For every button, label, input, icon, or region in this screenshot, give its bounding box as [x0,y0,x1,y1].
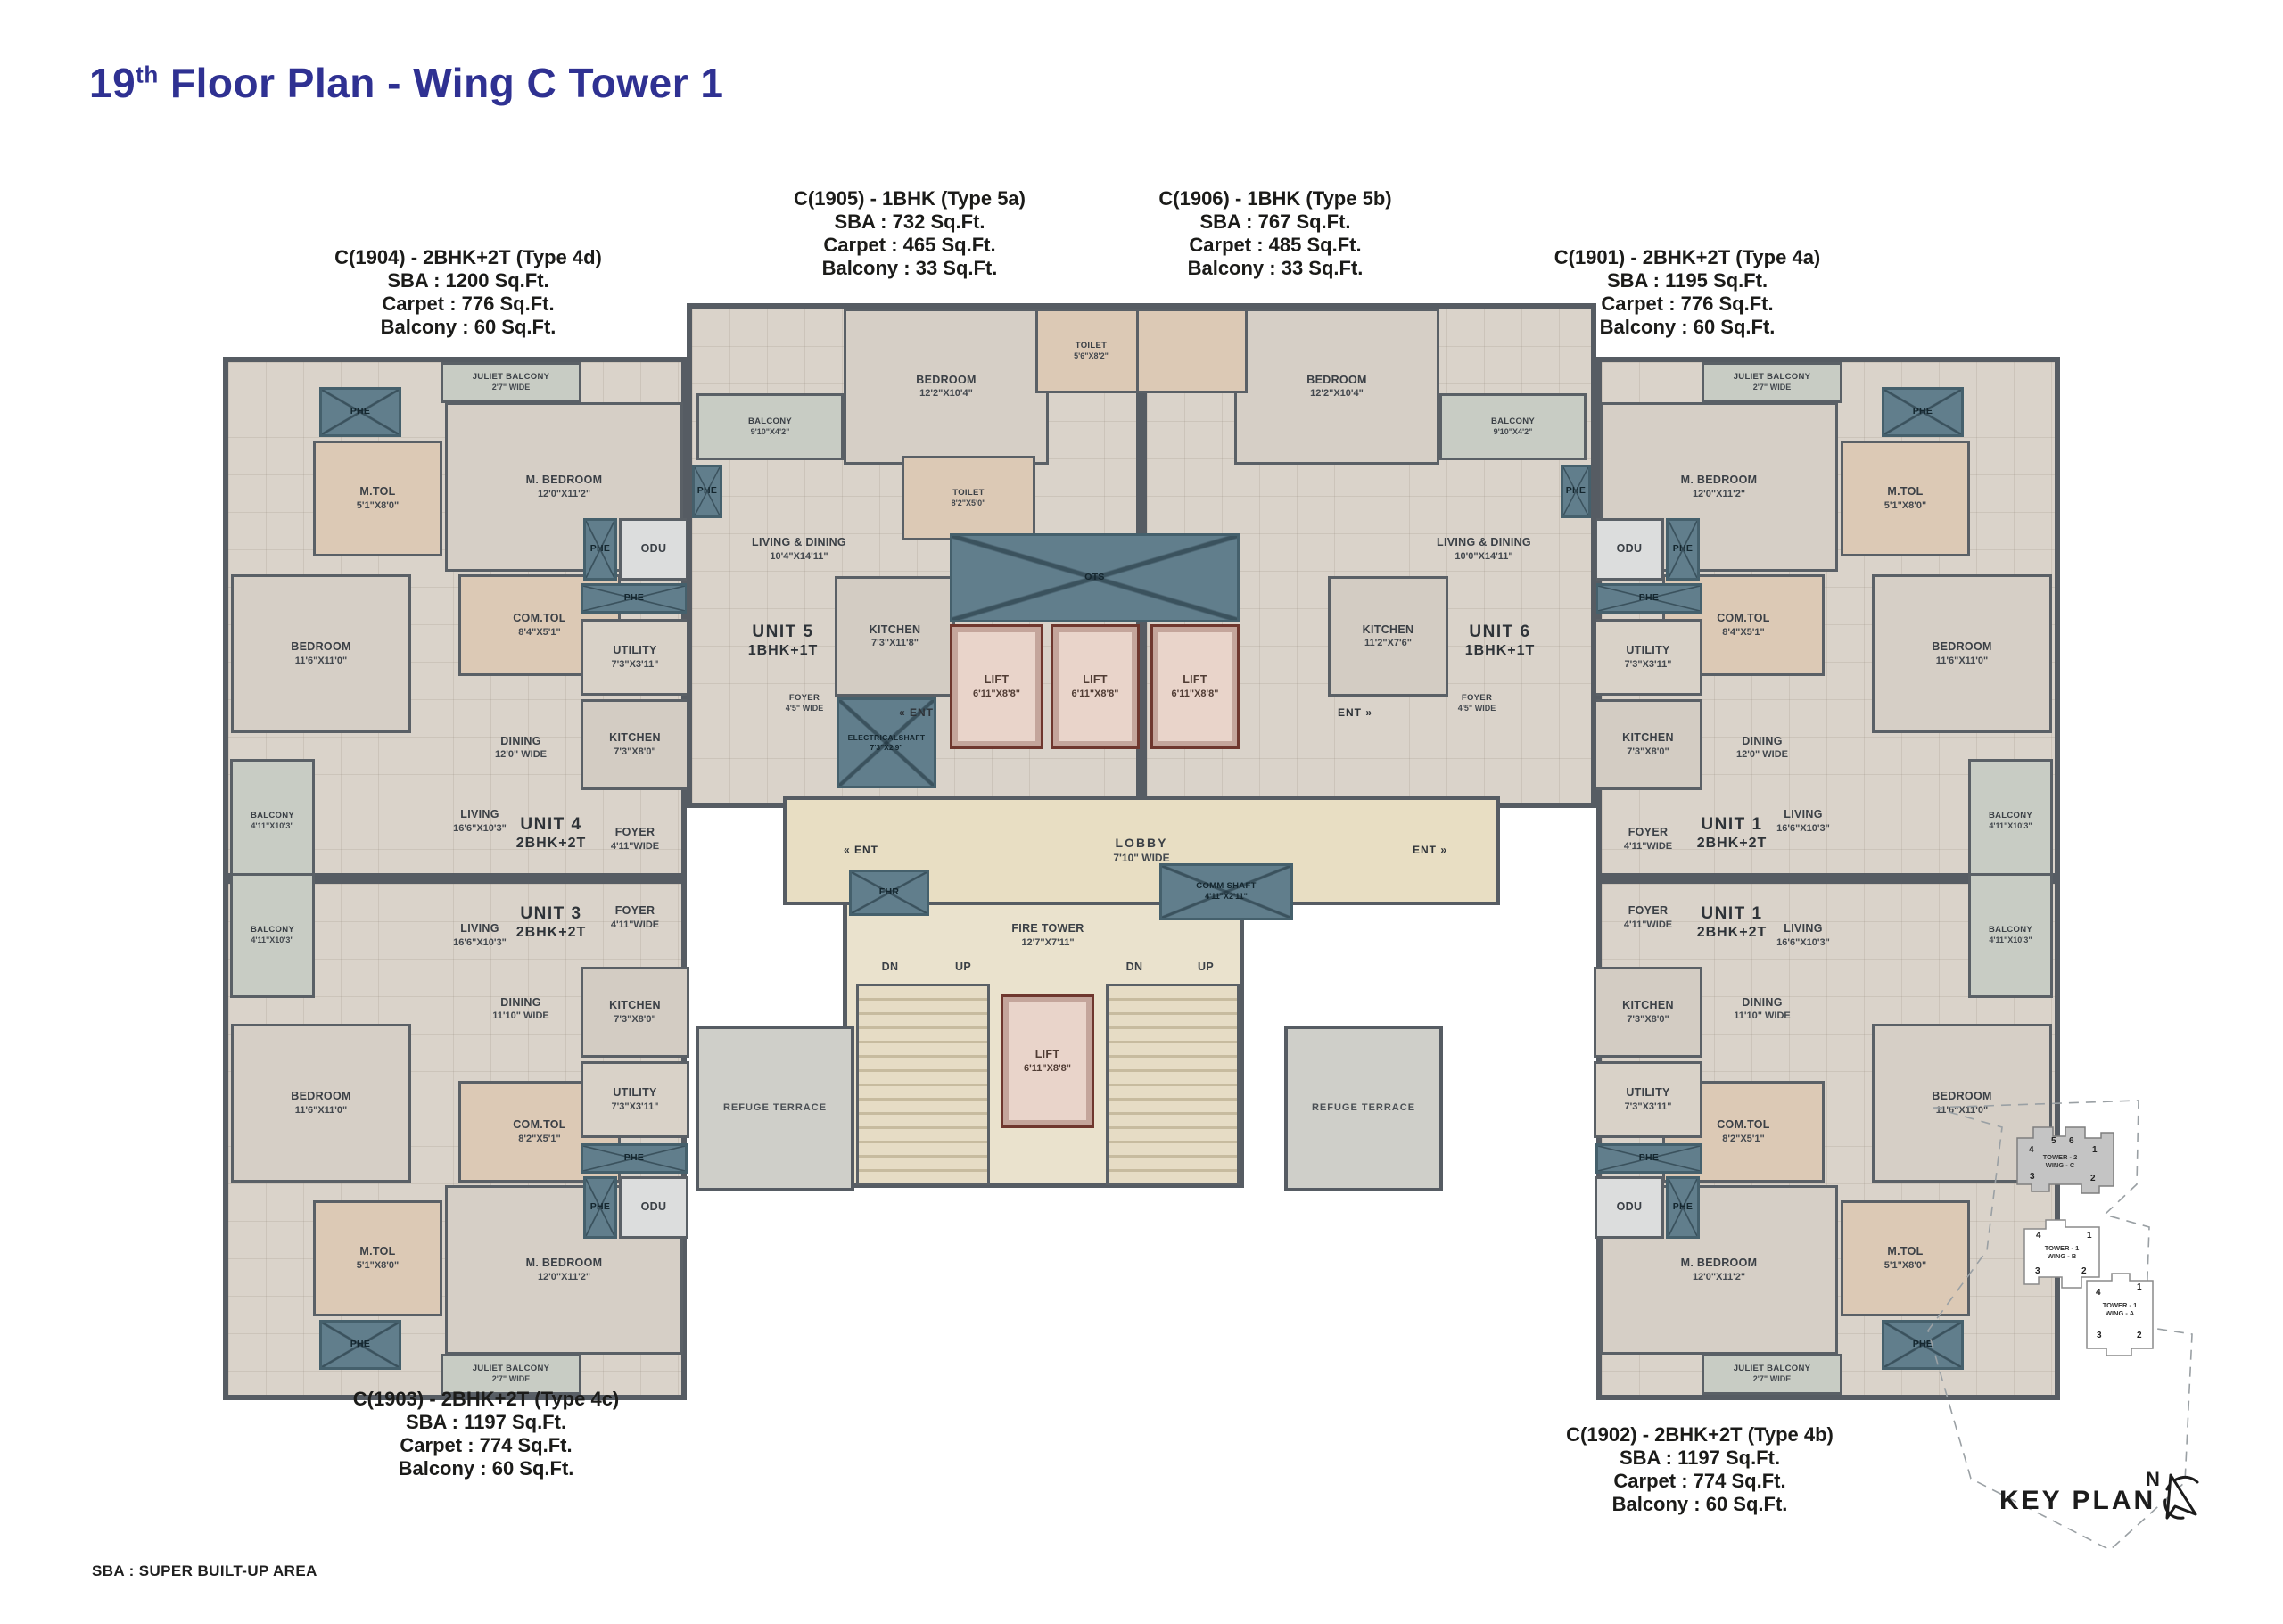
room-bedroom: BEDROOM12'2"X10'4" [1234,309,1439,465]
svg-text:4: 4 [2096,1288,2101,1298]
svg-text:WING - A: WING - A [2106,1309,2135,1317]
svg-text:WING - B: WING - B [2048,1252,2077,1260]
key-plan: 4 5 6 1 3 2 TOWER - 2 WING - C 4 1 3 2 T… [1917,1097,2274,1596]
page-title: 19th Floor Plan - Wing C Tower 1 [89,59,723,107]
room-kitchen: KITCHEN7'3"X8'0" [581,967,689,1058]
floor-plan-page: 19th Floor Plan - Wing C Tower 1 C(1904)… [0,0,2283,1624]
room-foyer-entry: FOYER4'5" WIDE [1432,683,1521,724]
annotation-c1903: C(1903) - 2BHK+2T (Type 4c) SBA : 1197 S… [326,1388,647,1480]
svg-text:N: N [2146,1468,2160,1490]
phe-shaft: PHE [583,1176,617,1239]
entry-marker: ENT » [1413,844,1447,856]
annotation-c1904: C(1904) - 2BHK+2T (Type 4d) SBA : 1200 S… [308,246,629,339]
staircase [856,984,990,1185]
room-bedroom: BEDROOM11'6"X11'0" [231,1024,411,1183]
svg-text:WING - C: WING - C [2046,1161,2075,1169]
room-living: LIVING16'6"X10'3" [373,759,587,884]
entry-marker: « ENT [899,706,934,719]
room-balcony: BALCONY4'11"X10'3" [1968,873,2053,998]
phe-shaft: PHE [581,1143,688,1174]
staircase [1106,984,1240,1185]
annotation-c1902: C(1902) - 2BHK+2T (Type 4b) SBA : 1197 S… [1539,1423,1860,1516]
lift-fire: LIFT6'11"X8'8" [1001,994,1094,1128]
juliet-balcony: JULIET BALCONY2'7" WIDE [1702,362,1842,403]
room-balcony: BALCONY9'10"X4'2" [1439,393,1587,460]
stair-up-label: UP [936,957,990,978]
unit-label: UNIT 61BHK+1T [1433,616,1567,666]
room-master-toilet: M.TOL5'1"X8'0" [313,1200,442,1316]
svg-text:4: 4 [2029,1145,2034,1155]
stair-up-label: UP [1179,957,1232,978]
fhr-shaft: FHR [849,870,929,916]
phe-shaft: PHE [1666,1176,1700,1239]
svg-text:1: 1 [2087,1231,2092,1241]
phe-shaft: PHE [1595,1143,1702,1174]
room-kitchen: KITCHEN7'3"X8'0" [1594,967,1702,1058]
phe-shaft: PHE [583,518,617,581]
entry-marker: ENT » [1338,706,1372,719]
svg-text:1: 1 [2137,1282,2142,1292]
room-bedroom: BEDROOM12'2"X10'4" [844,309,1049,465]
room-master-toilet: M.TOL5'1"X8'0" [1841,441,1970,556]
room-utility: UTILITY7'3"X3'11" [581,619,689,696]
entry-marker: « ENT [844,844,878,856]
room-balcony: BALCONY4'11"X10'3" [1968,759,2053,884]
svg-text:3: 3 [2030,1172,2035,1182]
odu-unit: ODU [619,1176,688,1239]
refuge-terrace: REFUGE TERRACE [696,1026,854,1191]
svg-text:2: 2 [2137,1331,2142,1340]
svg-text:KEY PLAN: KEY PLAN [1999,1486,2155,1515]
room-bedroom: BEDROOM11'6"X11'0" [1872,574,2052,733]
unit-label: UNIT 51BHK+1T [716,616,850,666]
room-foyer: FOYER4'11"WIDE [581,795,689,884]
stair-dn-label: DN [863,957,917,978]
room-utility: UTILITY7'3"X3'11" [1594,619,1702,696]
phe-shaft: PHE [319,1320,401,1370]
room-kitchen: KITCHEN7'3"X8'0" [581,699,689,790]
svg-text:5: 5 [2051,1136,2056,1146]
lift-1: LIFT6'11"X8'8" [950,624,1043,749]
room-foyer: FOYER4'11"WIDE [1594,795,1702,884]
svg-text:1: 1 [2092,1145,2098,1155]
room-balcony: BALCONY9'10"X4'2" [696,393,844,460]
annotation-c1906: C(1906) - 1BHK (Type 5b) SBA : 767 Sq.Ft… [1115,187,1436,280]
lift-3: LIFT6'11"X8'8" [1150,624,1240,749]
odu-unit: ODU [1595,1176,1664,1239]
juliet-balcony: JULIET BALCONY2'7" WIDE [441,362,581,403]
room-toilet: TOILET8'2"X5'0" [902,456,1035,540]
room-master-toilet: M.TOL5'1"X8'0" [313,441,442,556]
svg-text:TOWER - 1: TOWER - 1 [2045,1244,2080,1252]
room-living: LIVING16'6"X10'3" [373,873,587,998]
stair-dn-label: DN [1108,957,1161,978]
juliet-balcony: JULIET BALCONY2'7" WIDE [1702,1354,1842,1395]
svg-text:4: 4 [2036,1231,2041,1241]
svg-text:2: 2 [2081,1266,2087,1276]
room-foyer-entry: FOYER4'5" WIDE [760,683,849,724]
room-living-dining: LIVING & DINING10'0"X14'11" [1386,487,1582,612]
phe-shaft: PHE [1666,518,1700,581]
room-living: LIVING16'6"X10'3" [1696,759,1910,884]
phe-shaft: PHE [1595,583,1702,614]
room-toilet [1136,309,1248,393]
svg-text:3: 3 [2035,1266,2040,1276]
wing-unit-c1901: JULIET BALCONY2'7" WIDE PHE M.TOL5'1"X8'… [1596,357,2060,878]
fire-tower: FIRE TOWER12'7"X7'11" DN UP DN UP LIFT6'… [843,901,1244,1188]
room-foyer: FOYER4'11"WIDE [1594,873,1702,962]
odu-unit: ODU [1595,518,1664,581]
phe-shaft: PHE [581,583,688,614]
wing-unit-c1904: JULIET BALCONY2'7" WIDE PHE M.TOL5'1"X8'… [223,357,687,878]
room-kitchen: KITCHEN7'3"X8'0" [1594,699,1702,790]
room-balcony: BALCONY4'11"X10'3" [230,759,315,884]
wing-unit-c1903: JULIET BALCONY2'7" WIDE PHE M.TOL5'1"X8'… [223,878,687,1400]
fire-tower-label: FIRE TOWER12'7"X7'11" [927,916,1168,955]
phe-shaft: PHE [319,387,401,437]
room-foyer: FOYER4'11"WIDE [581,873,689,962]
room-living-dining: LIVING & DINING10'4"X14'11" [701,487,897,612]
comm-shaft: COMM SHAFT4'11"X2'11" [1159,863,1293,920]
annotation-c1901: C(1901) - 2BHK+2T (Type 4a) SBA : 1195 S… [1527,246,1848,339]
svg-text:6: 6 [2069,1136,2074,1146]
room-utility: UTILITY7'3"X3'11" [581,1061,689,1138]
refuge-terrace: REFUGE TERRACE [1284,1026,1443,1191]
room-living: LIVING16'6"X10'3" [1696,873,1910,998]
room-bedroom: BEDROOM11'6"X11'0" [231,574,411,733]
room-utility: UTILITY7'3"X3'11" [1594,1061,1702,1138]
annotation-c1905: C(1905) - 1BHK (Type 5a) SBA : 732 Sq.Ft… [749,187,1070,280]
ots-shaft: OTS [950,533,1240,622]
svg-text:TOWER - 2: TOWER - 2 [2043,1153,2078,1161]
phe-shaft: PHE [1882,387,1964,437]
room-toilet: TOILET5'6"X8'2" [1035,309,1147,393]
svg-text:2: 2 [2090,1174,2096,1183]
sba-footnote: SBA : SUPER BUILT-UP AREA [92,1562,317,1580]
odu-unit: ODU [619,518,688,581]
room-balcony: BALCONY4'11"X10'3" [230,873,315,998]
svg-text:3: 3 [2097,1331,2102,1340]
svg-text:TOWER - 1: TOWER - 1 [2103,1301,2138,1309]
lift-2: LIFT6'11"X8'8" [1051,624,1140,749]
